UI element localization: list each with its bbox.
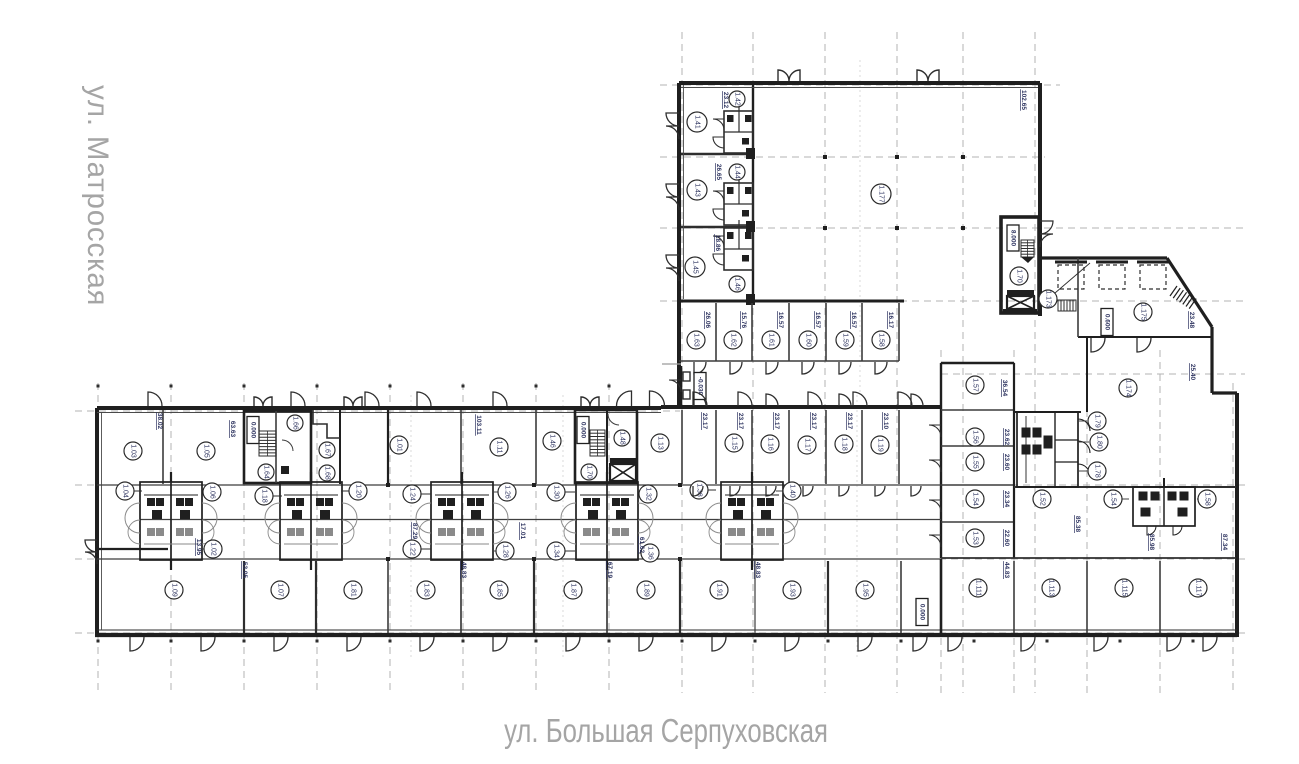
svg-text:1.04: 1.04: [122, 484, 129, 498]
svg-text:1.85: 1.85: [496, 583, 503, 597]
svg-text:23.17: 23.17: [737, 413, 744, 430]
svg-text:0.600: 0.600: [1104, 314, 1111, 331]
svg-text:1.30: 1.30: [553, 485, 560, 499]
svg-text:0.000: 0.000: [919, 604, 926, 621]
svg-text:1.15: 1.15: [731, 436, 738, 450]
svg-text:1.17: 1.17: [804, 438, 811, 452]
svg-text:1.58: 1.58: [878, 333, 885, 347]
svg-text:0.000: 0.000: [250, 422, 257, 439]
svg-text:1.64: 1.64: [263, 465, 270, 479]
svg-text:1.52: 1.52: [1039, 492, 1046, 506]
svg-text:15.76: 15.76: [740, 312, 747, 329]
svg-text:1.11: 1.11: [496, 440, 503, 453]
svg-text:17.01: 17.01: [519, 523, 526, 540]
svg-text:1.19: 1.19: [877, 438, 884, 452]
svg-text:85.38: 85.38: [1074, 516, 1081, 533]
svg-text:23.10: 23.10: [882, 413, 889, 430]
svg-text:1.91: 1.91: [716, 583, 723, 597]
svg-text:38.02: 38.02: [156, 413, 163, 430]
svg-text:1.24: 1.24: [409, 487, 416, 501]
svg-text:1.67: 1.67: [324, 443, 331, 457]
svg-text:1.89: 1.89: [643, 583, 650, 597]
svg-text:1.57: 1.57: [972, 378, 979, 392]
svg-text:1.56: 1.56: [972, 430, 979, 444]
svg-text:1.54: 1.54: [1110, 492, 1117, 506]
svg-text:1.26: 1.26: [504, 485, 511, 499]
svg-text:1.61: 1.61: [768, 333, 775, 347]
svg-text:1.41: 1.41: [694, 115, 701, 129]
svg-text:16.17: 16.17: [887, 312, 894, 329]
svg-text:1.05: 1.05: [203, 444, 210, 458]
svg-text:23.17: 23.17: [846, 413, 853, 430]
svg-text:1.78: 1.78: [1094, 464, 1101, 478]
svg-text:36.54: 36.54: [1001, 380, 1008, 397]
svg-text:1.66: 1.66: [292, 416, 299, 430]
svg-text:23.60: 23.60: [1003, 454, 1010, 471]
svg-text:18.86: 18.86: [714, 235, 721, 252]
svg-text:1.173: 1.173: [1045, 290, 1052, 308]
svg-text:1.45: 1.45: [692, 260, 699, 274]
svg-text:1.93: 1.93: [789, 583, 796, 597]
svg-text:26.65: 26.65: [715, 164, 722, 181]
svg-text:1.42: 1.42: [734, 92, 741, 106]
svg-text:48.83: 48.83: [460, 562, 467, 579]
svg-text:16.57: 16.57: [814, 312, 821, 329]
svg-text:25.40: 25.40: [1189, 364, 1196, 381]
svg-text:1.111: 1.111: [975, 580, 982, 597]
svg-text:63.63: 63.63: [229, 421, 236, 438]
svg-text:1.28: 1.28: [502, 544, 509, 558]
svg-text:1.32: 1.32: [645, 487, 652, 501]
svg-text:1.81: 1.81: [350, 583, 357, 597]
svg-text:ул. Матросская: ул. Матросская: [81, 85, 114, 306]
svg-text:1.113: 1.113: [1048, 580, 1055, 597]
svg-text:1.03: 1.03: [130, 444, 137, 458]
svg-text:85.98: 85.98: [1148, 534, 1155, 551]
svg-text:26.06: 26.06: [704, 312, 711, 329]
svg-text:1.62: 1.62: [730, 333, 737, 347]
svg-text:1.68: 1.68: [324, 466, 331, 480]
svg-text:13.95: 13.95: [195, 539, 202, 556]
svg-text:1.175: 1.175: [1140, 303, 1147, 321]
svg-text:1.40: 1.40: [789, 484, 796, 498]
svg-text:1.80: 1.80: [1096, 435, 1103, 449]
svg-text:16.57: 16.57: [777, 312, 784, 329]
svg-text:16.57: 16.57: [850, 312, 857, 329]
svg-text:103.11: 103.11: [475, 415, 482, 435]
svg-text:23.17: 23.17: [773, 413, 780, 430]
svg-text:1.36: 1.36: [647, 546, 654, 560]
svg-text:1.13: 1.13: [657, 436, 664, 450]
svg-text:1.58: 1.58: [1204, 492, 1211, 506]
svg-text:1.55: 1.55: [972, 455, 979, 469]
svg-text:1.09: 1.09: [171, 583, 178, 597]
svg-text:1.79: 1.79: [1094, 414, 1101, 428]
svg-text:1.95: 1.95: [862, 583, 869, 597]
svg-text:1.87: 1.87: [570, 583, 577, 597]
svg-text:1.46: 1.46: [549, 434, 556, 448]
svg-text:ул. Большая Серпуховская: ул. Большая Серпуховская: [504, 713, 828, 750]
svg-text:0.000: 0.000: [580, 422, 587, 439]
svg-text:1.70: 1.70: [1016, 269, 1023, 283]
svg-text:23.17: 23.17: [701, 413, 708, 430]
svg-text:23.34: 23.34: [1003, 491, 1010, 508]
svg-text:1.117: 1.117: [1195, 580, 1202, 597]
svg-text:61.62: 61.62: [638, 537, 645, 554]
svg-text:1.115: 1.115: [1121, 580, 1128, 597]
svg-text:1.53: 1.53: [972, 531, 979, 545]
svg-text:1.34: 1.34: [553, 544, 560, 558]
svg-text:23.48: 23.48: [1188, 312, 1195, 329]
svg-text:1.177: 1.177: [878, 185, 885, 203]
svg-text:23.62: 23.62: [1003, 429, 1010, 446]
svg-text:1.07: 1.07: [277, 583, 284, 597]
svg-text:1.46: 1.46: [734, 277, 741, 291]
svg-text:1.43: 1.43: [694, 183, 701, 197]
svg-text:1.63: 1.63: [693, 333, 700, 347]
svg-text:8.000: 8.000: [1010, 230, 1017, 247]
svg-text:1.83: 1.83: [423, 583, 430, 597]
svg-text:87.29: 87.29: [411, 523, 418, 540]
svg-text:48.83: 48.83: [754, 562, 761, 579]
svg-text:1.06: 1.06: [209, 485, 216, 499]
svg-text:67.19: 67.19: [606, 562, 613, 579]
svg-text:23.12: 23.12: [722, 92, 729, 109]
svg-text:44.83: 44.83: [1003, 562, 1010, 579]
svg-text:53.05: 53.05: [241, 562, 248, 579]
svg-text:1.18: 1.18: [841, 437, 848, 451]
svg-text:23.17: 23.17: [810, 413, 817, 430]
svg-text:1.01: 1.01: [396, 438, 403, 452]
svg-text:1.174: 1.174: [1125, 379, 1132, 397]
svg-text:1.44: 1.44: [734, 165, 741, 179]
svg-text:1.54: 1.54: [972, 492, 979, 506]
svg-text:1.18: 1.18: [261, 489, 268, 503]
svg-text:1.02: 1.02: [210, 542, 217, 556]
svg-text:1.48: 1.48: [619, 431, 626, 445]
svg-text:102.65: 102.65: [1020, 90, 1027, 110]
svg-text:87.34: 87.34: [1221, 534, 1228, 551]
svg-text:1.20: 1.20: [355, 484, 362, 498]
svg-text:1.16: 1.16: [767, 437, 774, 451]
svg-text:1.70: 1.70: [586, 465, 593, 479]
svg-text:22.60: 22.60: [1003, 530, 1010, 547]
svg-text:1.59: 1.59: [842, 333, 849, 347]
svg-text:1.60: 1.60: [805, 333, 812, 347]
svg-text:1.22: 1.22: [409, 542, 416, 556]
